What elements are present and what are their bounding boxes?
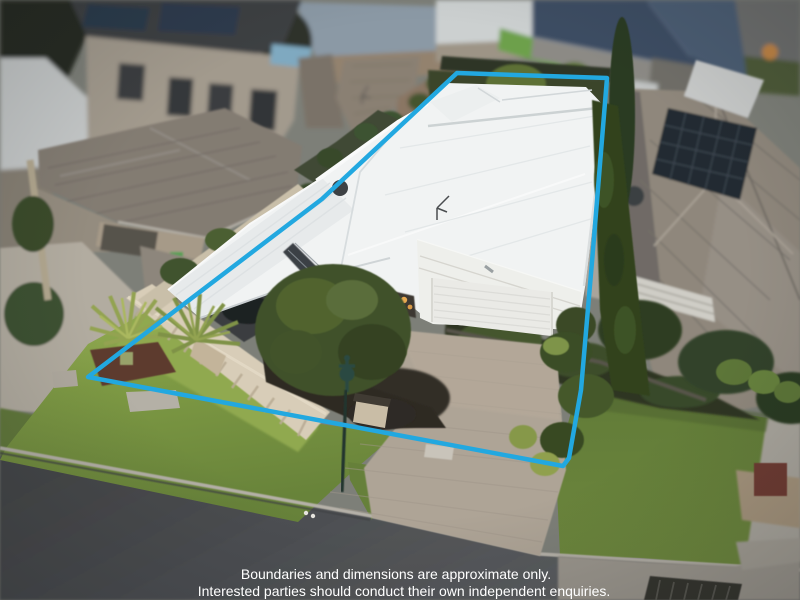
svg-text:Boundaries and dimensions are: Boundaries and dimensions are approximat… [241,566,551,582]
svg-text:Interested parties should cond: Interested parties should conduct their … [198,583,611,599]
